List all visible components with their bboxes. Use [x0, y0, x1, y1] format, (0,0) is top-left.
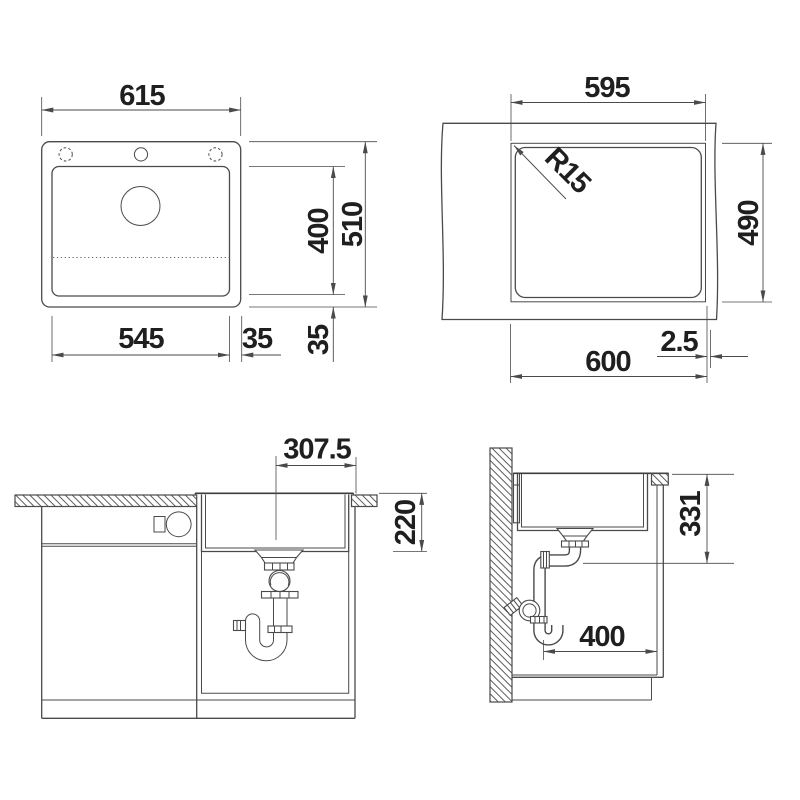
dim-2-5: 2.5 [657, 326, 748, 368]
dim-35-vertical: 35 [303, 307, 335, 362]
cutout-rounded-edge [515, 148, 701, 298]
wall-section [490, 448, 512, 702]
view-cutout: R15 595 490 600 2.5 [441, 72, 772, 383]
dim-400: 400 [249, 167, 345, 295]
dim-label-outer-width: 600 [585, 346, 630, 378]
view-front-section: 307.5 220 [15, 434, 427, 719]
dim-r15: R15 [514, 142, 597, 201]
bowl-section-side [518, 474, 648, 531]
dim-595: 595 [511, 72, 706, 141]
dim-label-bowl-depth: 400 [303, 208, 335, 253]
view-sink-top: 615 510 400 545 35 35 [42, 80, 377, 362]
dim-307-5: 307.5 [276, 434, 356, 494]
dim-label-edge-gap: 2.5 [660, 326, 698, 358]
dim-490: 490 [722, 143, 772, 302]
tap-hole-left-icon [59, 148, 72, 161]
bowl-section-front [202, 495, 349, 552]
dim-331: 331 [583, 474, 734, 563]
dishwasher-knob-icon [166, 512, 191, 537]
dim-label-drain-height: 331 [675, 490, 707, 536]
siphon-front [234, 550, 304, 661]
dim-label-bowl-width: 545 [118, 323, 164, 355]
sink-cabinet [42, 507, 355, 719]
dim-label-center-offset: 307.5 [283, 434, 351, 466]
dim-label-side-margin: 35 [242, 323, 273, 355]
drain-flange [255, 550, 303, 558]
drain-flange-side [557, 529, 593, 537]
dim-label-cutout-depth: 490 [733, 200, 765, 245]
view-side-section: 331 400 [490, 448, 734, 702]
dim-label-bottom-margin: 35 [303, 324, 335, 355]
sink-dimension-drawing: 615 510 400 545 35 35 [0, 0, 800, 800]
worktop-back-strip [514, 473, 520, 523]
cutout-outer-edge [511, 143, 706, 301]
sink-bowl [52, 167, 230, 297]
dim-label-width: 615 [119, 80, 165, 112]
worktop-front-left [15, 495, 197, 507]
worktop-side-front [652, 473, 669, 485]
dim-35-horizontal: 35 [242, 316, 281, 362]
dim-615: 615 [42, 80, 241, 136]
trap-inlet-joint [269, 571, 290, 592]
trap-outlet-connector [234, 621, 246, 631]
dim-label-clearance-depth: 400 [579, 621, 624, 653]
dim-label-corner-radius: R15 [538, 142, 597, 201]
dim-label-bowl-height: 220 [390, 500, 422, 545]
dim-label-total-depth: 510 [337, 202, 369, 247]
dim-label-cutout-width: 595 [584, 72, 630, 104]
dishwasher-cabinet [42, 507, 197, 719]
technical-drawing-page: 615 510 400 545 35 35 [0, 0, 800, 800]
worktop-front-right [352, 495, 378, 507]
tap-hole-center-icon [134, 148, 147, 161]
tap-hole-right-icon [209, 148, 222, 161]
drain-hole [121, 187, 160, 226]
dishwasher-display-icon [154, 517, 165, 533]
dim-545: 545 [52, 316, 230, 362]
dim-220: 220 [379, 493, 427, 551]
worktop-panel [441, 123, 717, 319]
